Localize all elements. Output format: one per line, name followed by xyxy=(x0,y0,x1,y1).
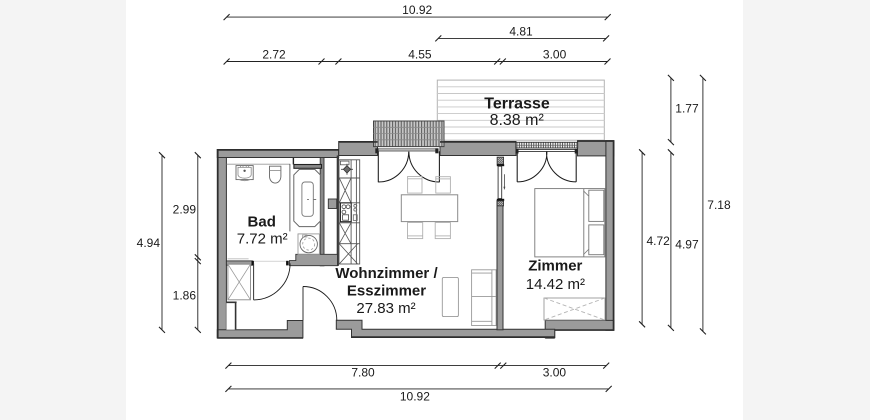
svg-text:2.72: 2.72 xyxy=(262,48,286,62)
svg-text:4.94: 4.94 xyxy=(137,236,161,250)
svg-text:8.38 m²: 8.38 m² xyxy=(490,112,545,129)
svg-text:7.80: 7.80 xyxy=(351,366,375,380)
svg-text:4.97: 4.97 xyxy=(675,237,699,251)
svg-text:4.81: 4.81 xyxy=(509,25,533,39)
svg-text:1.77: 1.77 xyxy=(675,102,699,116)
svg-text:Bad: Bad xyxy=(248,213,276,230)
svg-text:2.99: 2.99 xyxy=(173,203,197,217)
svg-text:3.00: 3.00 xyxy=(543,48,567,62)
svg-text:27.83 m²: 27.83 m² xyxy=(356,300,415,317)
svg-text:Zimmer: Zimmer xyxy=(528,258,582,275)
svg-text:Esszimmer: Esszimmer xyxy=(347,282,426,299)
svg-text:1.86: 1.86 xyxy=(173,289,197,303)
svg-text:10.92: 10.92 xyxy=(400,390,430,404)
svg-text:3.00: 3.00 xyxy=(543,366,567,380)
svg-text:4.72: 4.72 xyxy=(647,234,671,248)
svg-text:10.92: 10.92 xyxy=(402,3,432,17)
svg-text:7.18: 7.18 xyxy=(707,198,731,212)
svg-text:Terrasse: Terrasse xyxy=(484,95,550,112)
svg-text:14.42 m²: 14.42 m² xyxy=(526,276,585,293)
svg-text:Wohnzimmer /: Wohnzimmer / xyxy=(335,265,438,282)
svg-text:7.72 m²: 7.72 m² xyxy=(237,231,288,248)
svg-text:4.55: 4.55 xyxy=(408,48,432,62)
